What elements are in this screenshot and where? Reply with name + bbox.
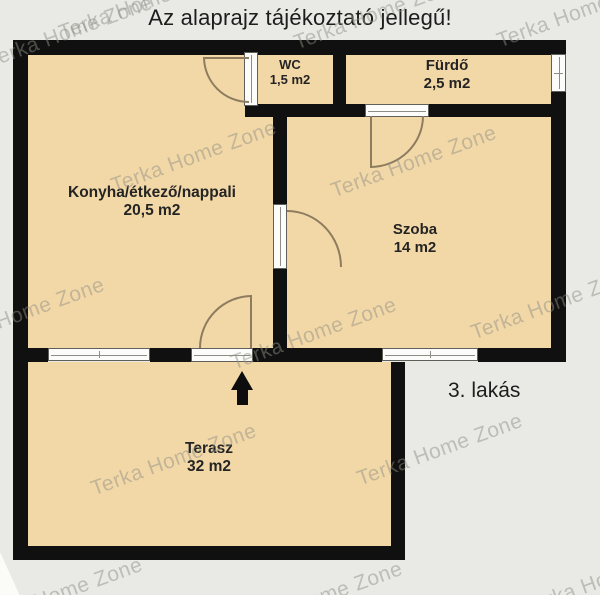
wall-terrace-bottom [13,546,405,560]
unit-label: 3. lakás [448,379,520,403]
scan-edge-artifact [0,552,20,595]
door-leaf-line [368,111,426,112]
door-leaf-kitchen-room [273,204,287,269]
window-bathroom [551,54,566,92]
window-kitchen [48,348,150,361]
wall-bottom-segment [150,348,192,362]
floor-plan: Az alaprajz tájékoztató jellegű! [0,0,600,595]
wall-top [13,40,566,55]
window-divider [99,351,100,358]
window-divider [554,73,563,74]
window-room [382,348,478,361]
room-label-bathroom: Fürdő 2,5 m2 [424,57,471,92]
wall-bottom-segment [13,348,48,362]
entrance-arrow-icon [237,388,248,405]
door-leaf-line [280,207,281,266]
door-leaf-line [251,55,252,103]
room-label-wc: WC 1,5 m2 [270,57,310,88]
watermark-text: Terka Home Zone [234,557,406,595]
wall-under-bathroom [428,104,551,117]
watermark-text: Terka Home Zone [521,538,600,595]
wall-under-wc [245,104,367,117]
window-divider [430,351,431,358]
wall-bottom-segment [478,348,566,362]
room-label-room: Szoba 14 m2 [393,221,437,256]
room-label-kitchen: Konyha/étkező/nappali 20,5 m2 [68,184,236,221]
